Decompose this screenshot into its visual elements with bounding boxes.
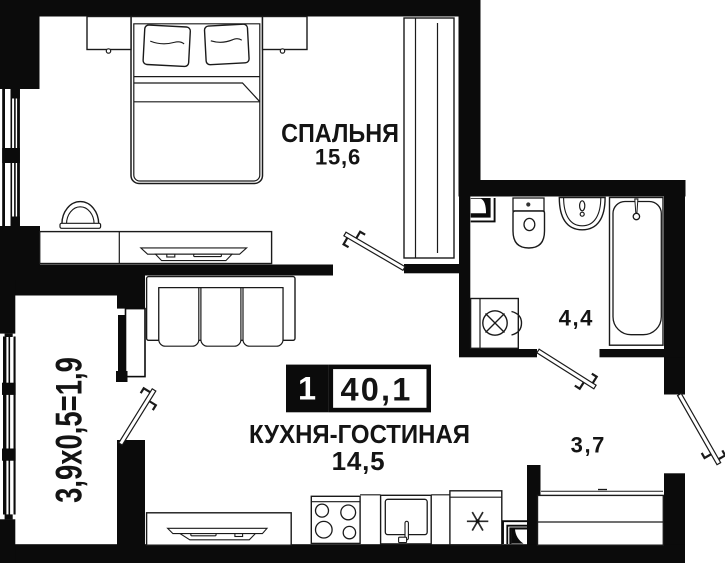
svg-text:3,7: 3,7 bbox=[571, 432, 606, 457]
svg-text:4,4: 4,4 bbox=[559, 306, 594, 331]
svg-text:3,9х0,5=1,9: 3,9х0,5=1,9 bbox=[48, 357, 89, 503]
svg-text:1: 1 bbox=[298, 371, 316, 407]
svg-text:40,1: 40,1 bbox=[340, 372, 412, 408]
svg-text:14,5: 14,5 bbox=[332, 446, 386, 476]
svg-text:15,6: 15,6 bbox=[315, 144, 361, 169]
svg-text:КУХНЯ-ГОСТИНАЯ: КУХНЯ-ГОСТИНАЯ bbox=[249, 420, 470, 449]
